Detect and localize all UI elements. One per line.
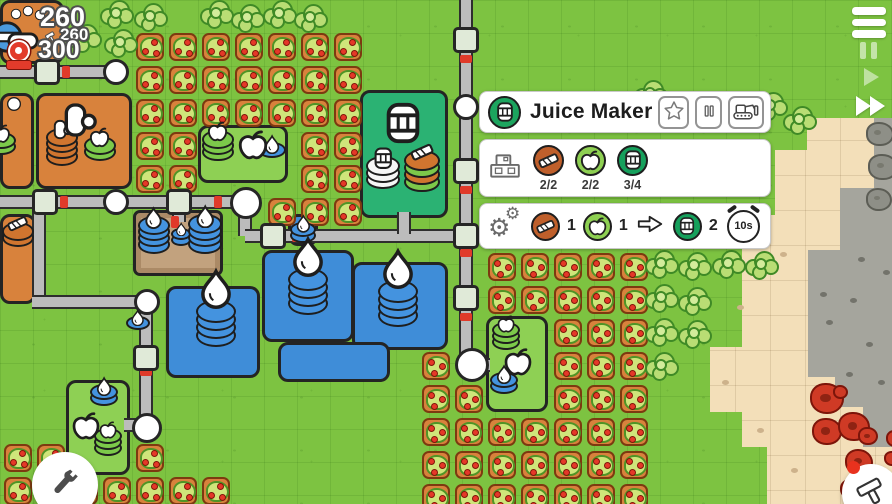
orchard-tile[interactable] <box>136 444 164 472</box>
favorite-button[interactable] <box>658 96 689 129</box>
orchard-tile[interactable] <box>488 253 516 281</box>
orchard-tile[interactable] <box>620 451 648 479</box>
pebble <box>883 270 890 275</box>
drop-icon <box>193 204 217 228</box>
inventory-slot-apple: 2/2 <box>575 145 606 192</box>
junction-box[interactable] <box>260 223 286 249</box>
pebble <box>866 342 873 347</box>
pause-building-icon <box>699 101 719 124</box>
orchard-tile[interactable] <box>268 66 296 94</box>
orchard-tile[interactable] <box>334 198 362 226</box>
berry-bush[interactable] <box>833 385 848 399</box>
game-viewport[interactable]: 260 260 300 Juice Maker <box>0 0 892 504</box>
orchard-tile[interactable] <box>301 99 329 127</box>
inventory-card: 2/2 2/2 3/4 <box>479 139 771 197</box>
junction-box[interactable] <box>453 27 479 53</box>
pebble <box>878 380 885 385</box>
orchard-tile[interactable] <box>334 132 362 160</box>
pebble <box>858 257 865 262</box>
recipe-input-plank-icon <box>531 212 560 241</box>
berry-bush[interactable] <box>886 430 892 447</box>
orchard-tile[interactable] <box>235 99 263 127</box>
tree[interactable] <box>645 318 679 350</box>
orchard-tile[interactable] <box>301 165 329 193</box>
notification-dot <box>847 461 860 474</box>
storage-icon <box>488 149 522 188</box>
pebble <box>820 292 827 297</box>
orchard-tile[interactable] <box>521 418 549 446</box>
orchard-tile[interactable] <box>136 165 164 193</box>
junction-box[interactable] <box>166 189 192 215</box>
orchard-tile[interactable] <box>202 66 230 94</box>
orchard-tile[interactable] <box>554 385 582 413</box>
ball-icon <box>22 5 34 17</box>
conveyor-pipe[interactable] <box>397 212 411 234</box>
ball-icon <box>6 96 22 112</box>
tree[interactable] <box>100 0 134 32</box>
conveyor-node[interactable] <box>103 59 129 85</box>
pebble <box>737 305 744 310</box>
orchard-tile[interactable] <box>136 477 164 504</box>
orchard-tile[interactable] <box>268 99 296 127</box>
pebble <box>780 252 787 257</box>
recipe-output-juice-icon <box>673 212 702 241</box>
orchard-tile[interactable] <box>136 66 164 94</box>
orchard-tile[interactable] <box>422 451 450 479</box>
apple-icon <box>502 346 534 378</box>
drop-icon <box>287 235 329 277</box>
tree[interactable] <box>645 284 679 316</box>
orchard-tile[interactable] <box>301 132 329 160</box>
berry-bush[interactable] <box>858 427 878 445</box>
panel-header-card: Juice Maker <box>479 91 771 133</box>
tree[interactable] <box>104 29 138 61</box>
juice-barrel-item-icon <box>617 145 648 176</box>
tree[interactable] <box>645 352 679 384</box>
pipe-marker <box>460 313 472 321</box>
orchard-tile[interactable] <box>587 352 615 380</box>
orchard-tile[interactable] <box>334 99 362 127</box>
pause-speed-button[interactable] <box>860 42 880 60</box>
orchard-tile[interactable] <box>136 99 164 127</box>
orchard-tile[interactable] <box>587 451 615 479</box>
orchard-tile[interactable] <box>169 33 197 61</box>
orchard-tile[interactable] <box>554 319 582 347</box>
orchard-tile[interactable] <box>620 286 648 314</box>
orchard-tile[interactable] <box>235 33 263 61</box>
conveyor-node[interactable] <box>103 189 129 215</box>
orchard-tile[interactable] <box>455 451 483 479</box>
hand-icon <box>58 100 98 140</box>
orchard-tile[interactable] <box>554 484 582 504</box>
juice-count: 3/4 <box>617 178 648 192</box>
pebble <box>757 428 764 433</box>
pebble <box>722 380 729 385</box>
menu-button[interactable] <box>852 7 886 39</box>
orchard-tile[interactable] <box>136 132 164 160</box>
play-speed-button[interactable] <box>864 68 879 86</box>
orchard-tile[interactable] <box>620 253 648 281</box>
orchard-tile[interactable] <box>169 66 197 94</box>
conveyor-node[interactable] <box>455 348 489 382</box>
orchard-tile[interactable] <box>169 99 197 127</box>
drop-icon <box>94 376 114 396</box>
map-layer <box>0 0 892 504</box>
tree[interactable] <box>678 252 712 284</box>
pipe-marker <box>460 55 472 63</box>
plank-icon <box>6 212 29 235</box>
orchard-tile[interactable] <box>268 33 296 61</box>
conveyor-node[interactable] <box>230 187 262 219</box>
apple-icon <box>496 314 516 334</box>
orchard-tile[interactable] <box>334 165 362 193</box>
tree[interactable] <box>645 250 679 282</box>
rock[interactable] <box>868 154 892 180</box>
orchard-tile[interactable] <box>554 418 582 446</box>
orchard-tile[interactable] <box>554 253 582 281</box>
fast-forward-icon <box>856 96 871 116</box>
panel-title: Juice Maker <box>530 100 652 124</box>
tree[interactable] <box>231 4 265 36</box>
inventory-slot-plank: 2/2 <box>533 145 564 192</box>
plank-item-icon <box>533 145 564 176</box>
juice-maker-icon <box>488 96 521 129</box>
orchard-tile[interactable] <box>103 477 131 504</box>
orchard-tile[interactable] <box>620 319 648 347</box>
score-count: 300 <box>38 38 80 63</box>
pebble <box>850 298 857 303</box>
conveyor-node[interactable] <box>453 94 479 120</box>
demolish-button[interactable] <box>728 96 764 129</box>
orchard-tile[interactable] <box>554 352 582 380</box>
plank-count: 2/2 <box>533 178 564 192</box>
orchard-tile[interactable] <box>554 286 582 314</box>
junction-box[interactable] <box>453 158 479 184</box>
orchard-tile[interactable] <box>169 132 197 160</box>
orchard-tile[interactable] <box>169 477 197 504</box>
orchard-tile[interactable] <box>422 484 450 504</box>
orchard-tile[interactable] <box>554 451 582 479</box>
conveyor-pipe[interactable] <box>32 205 46 305</box>
orchard-tile[interactable] <box>488 451 516 479</box>
orchard-tile[interactable] <box>488 484 516 504</box>
conveyor-pipe[interactable] <box>32 295 144 309</box>
orchard-tile[interactable] <box>268 198 296 226</box>
pebble <box>846 372 853 377</box>
menu-icon <box>852 7 886 15</box>
junction-box[interactable] <box>133 345 159 371</box>
recipe-input-apple-qty: 1 <box>619 217 628 235</box>
orchard-tile[interactable] <box>620 484 648 504</box>
rock[interactable] <box>866 188 892 211</box>
score-badge-icon <box>8 40 30 62</box>
ball-icon <box>10 8 22 20</box>
orchard-tile[interactable] <box>587 286 615 314</box>
orchard-tile[interactable] <box>587 385 615 413</box>
orchard-tile[interactable] <box>521 451 549 479</box>
drop-icon <box>174 222 188 236</box>
fast-forward-speed-button[interactable] <box>856 96 890 116</box>
orchard-tile[interactable] <box>334 33 362 61</box>
apple-icon <box>0 123 12 145</box>
apple-item-icon <box>575 145 606 176</box>
drop-icon <box>377 247 419 289</box>
wrench-icon <box>47 465 83 504</box>
orchard-tile[interactable] <box>620 385 648 413</box>
orchard-tile[interactable] <box>488 286 516 314</box>
orchard-tile[interactable] <box>422 385 450 413</box>
tree[interactable] <box>200 0 234 32</box>
pebble <box>791 468 798 473</box>
orchard-tile[interactable] <box>521 253 549 281</box>
junction-box[interactable] <box>32 189 58 215</box>
orchard-tile[interactable] <box>587 418 615 446</box>
recipe-arrow-icon <box>637 214 664 239</box>
building-panel: Juice Maker 2/2 <box>479 91 771 249</box>
recipe-output-qty: 2 <box>709 217 718 235</box>
recipe-gears-icon: ⚙⚙ <box>488 209 524 243</box>
barrel-icon <box>380 100 426 146</box>
recipe-duration: 10s <box>734 220 752 232</box>
orchard-tile[interactable] <box>4 477 32 504</box>
orchard-tile[interactable] <box>334 66 362 94</box>
apple-icon <box>206 120 229 143</box>
orchard-tile[interactable] <box>202 477 230 504</box>
orchard-tile[interactable] <box>455 484 483 504</box>
tree[interactable] <box>294 4 328 36</box>
tree[interactable] <box>678 287 712 319</box>
pipe-marker <box>460 249 472 257</box>
tree[interactable] <box>745 251 779 283</box>
orchard-tile[interactable] <box>202 33 230 61</box>
orchard-tile[interactable] <box>4 444 32 472</box>
orchard-tile[interactable] <box>521 484 549 504</box>
water-plot[interactable] <box>278 342 390 382</box>
orchard-tile[interactable] <box>422 418 450 446</box>
apple-icon <box>236 128 270 162</box>
junction-box[interactable] <box>453 223 479 249</box>
rock[interactable] <box>866 122 892 146</box>
pause-building-button[interactable] <box>695 96 722 129</box>
orchard-tile[interactable] <box>136 33 164 61</box>
junction-box[interactable] <box>453 285 479 311</box>
orchard-tile[interactable] <box>488 418 516 446</box>
pebble <box>826 320 833 325</box>
orchard-tile[interactable] <box>620 418 648 446</box>
hammer-icon <box>854 474 888 504</box>
orchard-tile[interactable] <box>455 418 483 446</box>
pipe-marker <box>460 186 472 194</box>
orchard-tile[interactable] <box>301 66 329 94</box>
conveyor-node[interactable] <box>132 413 162 443</box>
barrel-icon <box>371 146 395 170</box>
drop-icon <box>195 267 237 309</box>
orchard-tile[interactable] <box>620 352 648 380</box>
orchard-tile[interactable] <box>301 33 329 61</box>
tree[interactable] <box>678 320 712 352</box>
orchard-tile[interactable] <box>587 319 615 347</box>
inventory-slot-juice: 3/4 <box>617 145 648 192</box>
bulldozer-icon <box>731 99 761 125</box>
orchard-tile[interactable] <box>587 484 615 504</box>
recipe-input-apple-icon <box>583 212 612 241</box>
drop-icon <box>129 309 146 326</box>
orchard-tile[interactable] <box>422 352 450 380</box>
orchard-tile[interactable] <box>455 385 483 413</box>
tree[interactable] <box>263 0 297 32</box>
drop-icon <box>294 214 313 233</box>
orchard-tile[interactable] <box>521 286 549 314</box>
score-badge-base <box>6 60 32 70</box>
orchard-tile[interactable] <box>235 66 263 94</box>
apple-count: 2/2 <box>575 178 606 192</box>
pipe-marker <box>60 196 68 208</box>
recipe-input-plank-qty: 1 <box>567 217 576 235</box>
tree[interactable] <box>783 106 817 138</box>
build-button[interactable] <box>842 464 892 504</box>
drop-icon <box>142 206 165 229</box>
pipe-marker <box>62 66 70 78</box>
orchard-tile[interactable] <box>587 253 615 281</box>
berry-bush[interactable] <box>884 451 892 466</box>
duration-clock-icon: 10s <box>727 210 760 243</box>
recipe-card: ⚙⚙ 1 1 2 10s <box>479 203 771 249</box>
tree[interactable] <box>134 3 168 35</box>
pause-icon <box>860 42 866 59</box>
star-icon <box>662 99 686 126</box>
tree[interactable] <box>712 250 746 282</box>
apple-icon <box>70 410 102 442</box>
